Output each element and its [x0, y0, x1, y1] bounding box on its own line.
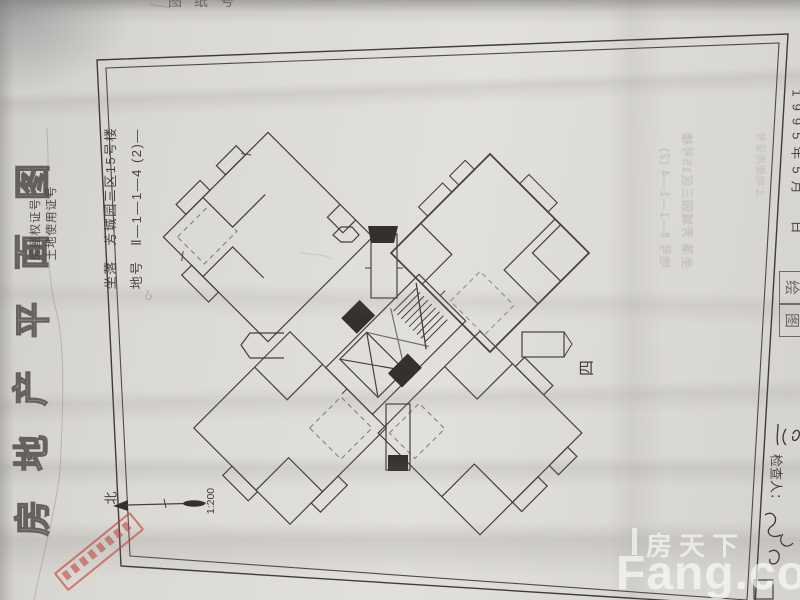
right-bay — [522, 332, 564, 357]
solid-wall — [341, 300, 375, 334]
solid-wall — [368, 226, 398, 243]
plot-info: 坐落 芳城园三区15号楼 地号 Ⅱ—1—1—4 (2)— — [98, 127, 150, 289]
core-stair-elevator — [304, 252, 472, 420]
side-title-char: 产 — [2, 370, 54, 406]
side-title-char: 地 — [3, 435, 55, 471]
watermark-divider — [632, 528, 637, 555]
solid-wall — [388, 455, 408, 471]
photo-of-document: 坐落 芳城园三区15号楼 地号 Ⅱ—1—1—4 (2) 土地使用证号 — [0, 0, 800, 600]
drawer-box-char: 图 — [782, 313, 800, 328]
inspector-label: 检查人： — [768, 454, 787, 506]
house-cert-label: 房屋权证号 — [28, 186, 44, 261]
wing-northwest — [144, 122, 373, 351]
floor-label: 四 — [573, 360, 597, 376]
north-arrow — [113, 499, 206, 511]
certificate-labels: 房屋权证号 土地使用证号 — [28, 186, 60, 261]
scale-label: 1:200 — [205, 488, 217, 514]
drawer-box-cell: 图 — [779, 304, 800, 337]
corridor-connectors — [241, 226, 572, 471]
side-title-char: 平 — [4, 302, 56, 338]
elevator-x — [340, 332, 405, 397]
north-label: 北 — [101, 491, 120, 504]
floor-plan-drawing — [0, 0, 800, 600]
wing-southeast — [378, 322, 600, 544]
drawer-box-char: 绘 — [782, 280, 800, 295]
wing-northeast — [382, 136, 598, 352]
drawer-box-cell: 绘 — [779, 271, 800, 304]
plot-number-line: 地号 Ⅱ—1—1—4 (2)— — [124, 127, 150, 289]
land-cert-label: 土地使用证号 — [44, 186, 60, 261]
side-title-char: 房 — [4, 500, 56, 536]
location-line: 坐落 芳城园三区15号楼 — [98, 127, 124, 289]
top-edge-label: 图纸号 — [168, 0, 246, 11]
scan-smudges — [146, 4, 331, 300]
date-label: 1995年5月 日 — [789, 89, 800, 240]
